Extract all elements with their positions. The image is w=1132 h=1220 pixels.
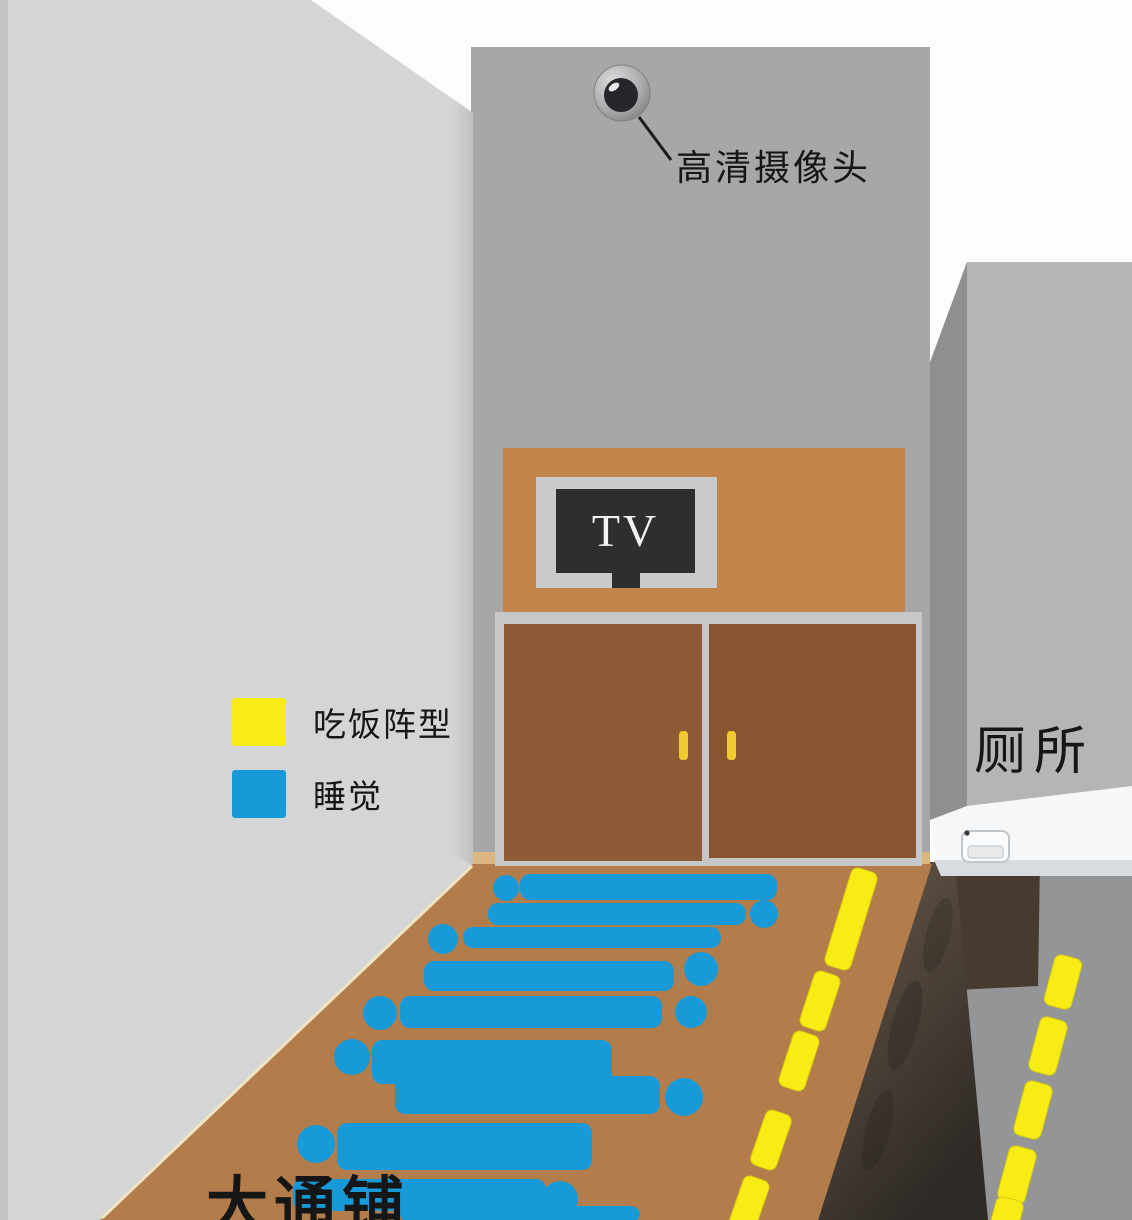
tv-stand <box>612 571 640 588</box>
sleeper-figure-head <box>297 1125 335 1163</box>
door-right <box>709 624 916 858</box>
sleeper-figure-head <box>665 1078 703 1116</box>
left-wall-corner-shade <box>451 95 473 866</box>
sleeper-figure-head <box>750 900 778 928</box>
camera-label: 高清摄像头 <box>676 150 871 186</box>
sleeper-figure-head <box>493 875 519 901</box>
sleeper-figure-body <box>395 1076 660 1114</box>
sleeper-figure-head <box>675 996 707 1028</box>
toilet-counter-edge <box>934 860 1132 876</box>
room-diagram: 高清摄像头 TV 厕所 大通铺 吃饭阵型 睡觉 <box>0 0 1132 1220</box>
sleeper-figure-body <box>520 874 777 900</box>
toilet-seat <box>968 846 1003 858</box>
sleeper-figure-head <box>428 924 458 954</box>
scene-art <box>0 0 1132 1220</box>
door-handle-left <box>679 731 688 760</box>
legend-item-sleeping: 睡觉 <box>232 770 383 818</box>
legend-swatch-eating <box>232 698 286 746</box>
legend-label-sleeping: 睡觉 <box>313 770 383 818</box>
sleeper-figure-body <box>488 903 746 925</box>
toilet-button <box>964 830 969 835</box>
legend-label-eating: 吃饭阵型 <box>313 698 453 746</box>
sleeper-figure-head <box>334 1039 370 1075</box>
communal-bed-label: 大通铺 <box>206 1176 410 1220</box>
sleeper-figure-body <box>400 996 662 1028</box>
legend-item-eating: 吃饭阵型 <box>232 698 453 746</box>
sleeper-figure-body <box>400 1206 640 1220</box>
door-handle-right <box>727 731 736 760</box>
sleeper-figure-body <box>424 961 674 991</box>
camera-lens <box>604 78 638 112</box>
sleeper-figure-body <box>337 1123 592 1170</box>
toilet-label: 厕所 <box>974 726 1094 778</box>
right-wall-side-face <box>930 262 967 820</box>
sleeper-figure-body <box>463 927 721 948</box>
sleeper-figure-head <box>684 952 718 986</box>
left-wall-edge-shade <box>0 0 8 1220</box>
tv-label: TV <box>556 489 695 573</box>
legend-swatch-sleeping <box>232 770 286 818</box>
toilet-fixture <box>962 830 1009 862</box>
sleeper-figure-head <box>363 996 397 1030</box>
door-left <box>504 624 702 861</box>
